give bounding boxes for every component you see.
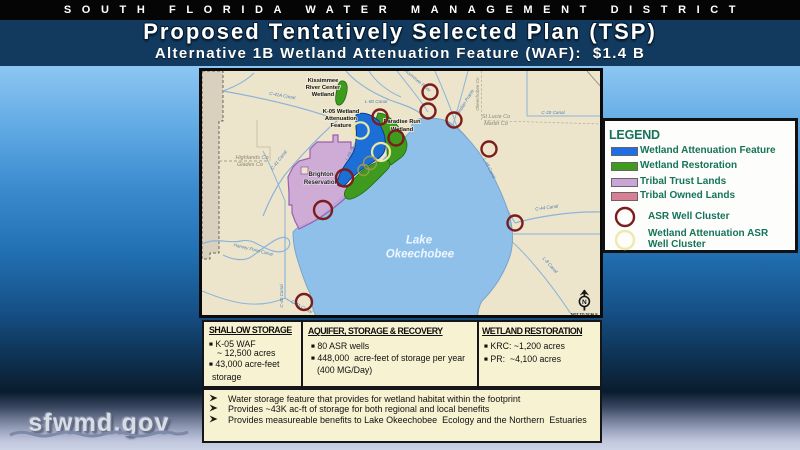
svg-text:Attenuation: Attenuation: [325, 116, 358, 122]
svg-text:Glades Co: Glades Co: [237, 162, 263, 168]
svg-text:N: N: [582, 299, 587, 306]
svg-text:Paradise Run: Paradise Run: [383, 119, 421, 125]
svg-text:Brighton: Brighton: [309, 172, 334, 178]
svg-text:Martin Co: Martin Co: [484, 121, 508, 127]
svg-text:C-40 Canal: C-40 Canal: [279, 283, 284, 307]
svg-text:NOT TO SCALE: NOT TO SCALE: [571, 313, 598, 316]
svg-text:Reservation: Reservation: [304, 180, 339, 186]
svg-text:Highlands Co: Highlands Co: [235, 155, 268, 161]
svg-text:St Lucie Co: St Lucie Co: [482, 114, 510, 120]
svg-text:Okeechobee Co: Okeechobee Co: [475, 77, 480, 111]
svg-text:C-20 Canal: C-20 Canal: [541, 110, 565, 115]
svg-text:Feature: Feature: [331, 123, 353, 129]
svg-text:K-05 Wetland: K-05 Wetland: [323, 109, 360, 115]
svg-text:Kissimmee: Kissimmee: [308, 78, 339, 84]
svg-text:L-80 Canal: L-80 Canal: [365, 99, 388, 104]
svg-text:River Center: River Center: [306, 85, 341, 91]
svg-text:Okeechobee: Okeechobee: [386, 249, 455, 261]
svg-text:Wetland: Wetland: [312, 92, 335, 98]
svg-text:Lake: Lake: [406, 235, 433, 247]
